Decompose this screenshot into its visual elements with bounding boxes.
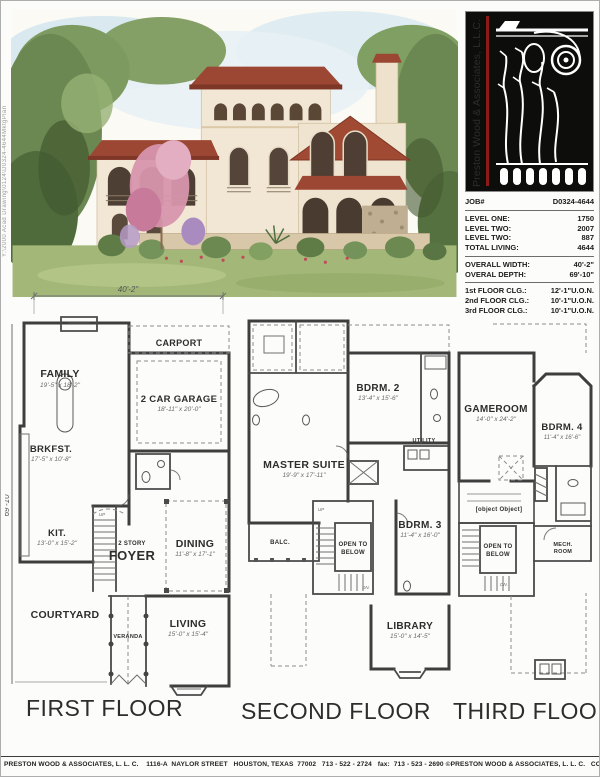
- footer-address-bar: PRESTON WOOD & ASSOCIATES, L. L. C. 1116…: [1, 756, 599, 768]
- dim-value: 69'-10": [569, 270, 594, 280]
- open-below-line2: BELOW: [341, 550, 365, 556]
- area-value: 887: [581, 233, 594, 243]
- red-accent-bar: [486, 16, 489, 186]
- corinthian-capital-art: Preston Wood & Associates, L.L.C.: [466, 12, 593, 191]
- dim-value: 40'-2": [574, 260, 594, 270]
- room-label-kit: KIT.: [48, 528, 66, 539]
- room-label-courtyard: COURTYARD: [31, 609, 100, 621]
- third-floor-plan: GAMEROOM 14'-0" x 24'-2" BDRM. 4 11'-4" …: [449, 298, 599, 696]
- room-label-dining: DINING: [176, 538, 215, 550]
- room-label-bdrm4: BDRM. 4: [541, 422, 583, 433]
- logo-panel: Preston Wood & Associates, L.L.C.: [465, 11, 594, 192]
- job-number: D0324-4644: [553, 197, 594, 207]
- file-path-label: Y:\2000 Acad Drawing\0124\D0324-4644Mktg…: [2, 57, 8, 257]
- area-label: TOTAL LIVING:: [465, 243, 519, 253]
- room-label-balc: BALC.: [270, 540, 290, 546]
- area-value: 4644: [577, 243, 594, 253]
- divider: [465, 282, 594, 283]
- open-below-line1: OPEN TO: [339, 542, 368, 548]
- room-label-bdrm3: BDRM. 3: [398, 520, 441, 531]
- area-label: LEVEL TWO:: [465, 224, 511, 234]
- room-dims-family: 19'-5" x 18'-2": [40, 382, 81, 389]
- room-dims-garage: 18'-11" x 20'-0": [157, 406, 201, 413]
- room-dims-gameroom: 14'-0" x 24'-2": [476, 416, 517, 423]
- plan-sheet: Y:\2000 Acad Drawing\0124\D0324-4644Mktg…: [0, 0, 600, 777]
- room-dims-brkfst: 17'-5" x 10'-8": [31, 456, 72, 463]
- svg-text:69'-10": 69'-10": [5, 490, 11, 516]
- house-illustration: [11, 9, 458, 297]
- room-label-carport: CARPORT: [156, 338, 203, 348]
- mech-room-line2: ROOM: [554, 549, 572, 555]
- stair-label-up: UP: [318, 507, 324, 512]
- room-label-2story: 2 STORY: [118, 541, 145, 547]
- room-label-brkfst: BRKFST.: [30, 444, 72, 455]
- area-label: LEVEL TWO:: [465, 233, 511, 243]
- stair-label-dn: DN.: [362, 585, 370, 590]
- width-dimension: 40'-2": [31, 285, 226, 314]
- room-label-veranda: VERANDA: [113, 634, 142, 640]
- room-dims-kit: 13'-0" x 15'-2": [37, 540, 78, 547]
- room-label-living: LIVING: [170, 618, 207, 630]
- stair-label-up: UP: [99, 512, 105, 517]
- room-dims-bdrm2: 13'-4" x 15'-6": [358, 395, 399, 402]
- room-dims-master: 19'-9" x 17'-11": [282, 472, 326, 479]
- room-dims-library: 15'-0" x 14'-5": [390, 633, 431, 640]
- svg-text:40'-2": 40'-2": [118, 285, 140, 294]
- walls: [459, 324, 591, 679]
- title-first-floor: FIRST FLOOR: [26, 695, 183, 722]
- room-label-bdrm2: BDRM. 2: [356, 383, 399, 394]
- house-rendering: [11, 9, 458, 297]
- company-name-vertical: Preston Wood & Associates, L.L.C.: [471, 19, 483, 187]
- dim-label: OVERALL WIDTH:: [465, 260, 530, 270]
- room-label-library: LIBRARY: [387, 621, 433, 632]
- area-value: 1750: [577, 214, 594, 224]
- dim-label: OVERAL DEPTH:: [465, 270, 526, 280]
- first-floor-plan: 40'-2" 69'-10": [5, 284, 245, 696]
- open-below-line2: BELOW: [486, 552, 510, 558]
- stair-label-dn: DN.: [500, 582, 508, 587]
- divider: [465, 210, 594, 211]
- room-label-utility: UTILITY: [413, 438, 436, 444]
- room-label-foyer: FOYER: [109, 548, 156, 563]
- room-dims-bdrm3: 11'-4" x 16'-0": [400, 532, 440, 539]
- job-label: JOB#: [465, 197, 485, 207]
- title-third-floor: THIRD FLOOR: [453, 698, 600, 725]
- room-label-garage: 2 CAR GARAGE: [141, 394, 217, 405]
- divider: [465, 256, 594, 257]
- clg-label: 1st FLOOR CLG.:: [465, 286, 527, 296]
- room-label-studyloft: [object Object]: [476, 507, 523, 513]
- second-floor-plan: MASTER SUITE 19'-9" x 17'-11" BDRM. 2 13…: [244, 298, 466, 696]
- area-value: 2007: [577, 224, 594, 234]
- depth-dimension: 69'-10": [5, 324, 12, 684]
- open-below-line1: OPEN TO: [484, 544, 513, 550]
- clg-value: 12'-1"U.O.N.: [551, 286, 594, 296]
- area-label: LEVEL ONE:: [465, 214, 510, 224]
- room-dims-living: 15'-0" x 15'-4": [168, 631, 209, 638]
- title-second-floor: SECOND FLOOR: [241, 698, 431, 725]
- room-dims-bdrm4: 11'-4" x 16'-6": [544, 435, 581, 441]
- room-label-master: MASTER SUITE: [263, 459, 345, 471]
- room-label-gameroom: GAMEROOM: [464, 404, 528, 415]
- job-number-row: JOB# D0324-4644: [465, 197, 594, 207]
- mech-room-line1: MECH.: [553, 542, 572, 548]
- room-label-family: FAMILY: [40, 368, 79, 380]
- room-dims-dining: 11'-8" x 17'-1": [175, 551, 215, 558]
